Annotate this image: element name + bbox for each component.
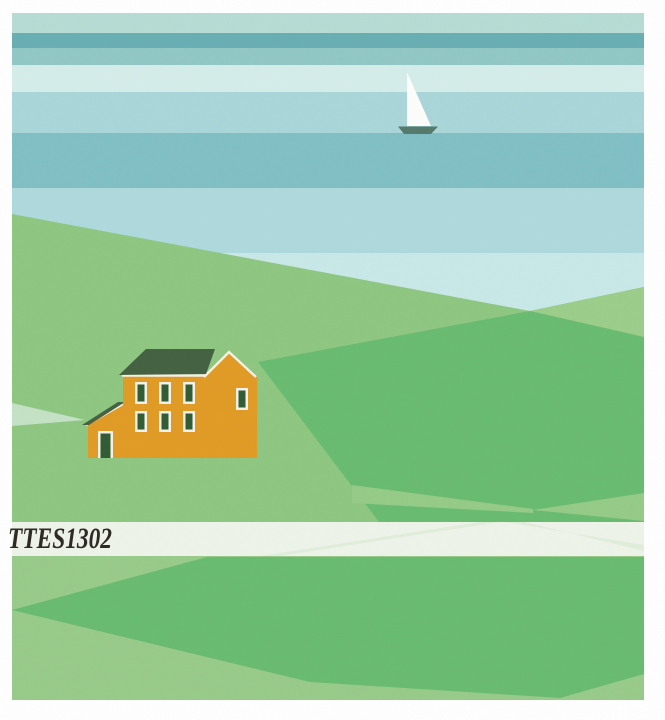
paper-grain-overlay — [12, 13, 644, 700]
poster: TTES1302 — [0, 0, 665, 720]
artwork-scene — [0, 0, 665, 720]
artwork-code: TTES1302 — [8, 524, 112, 554]
